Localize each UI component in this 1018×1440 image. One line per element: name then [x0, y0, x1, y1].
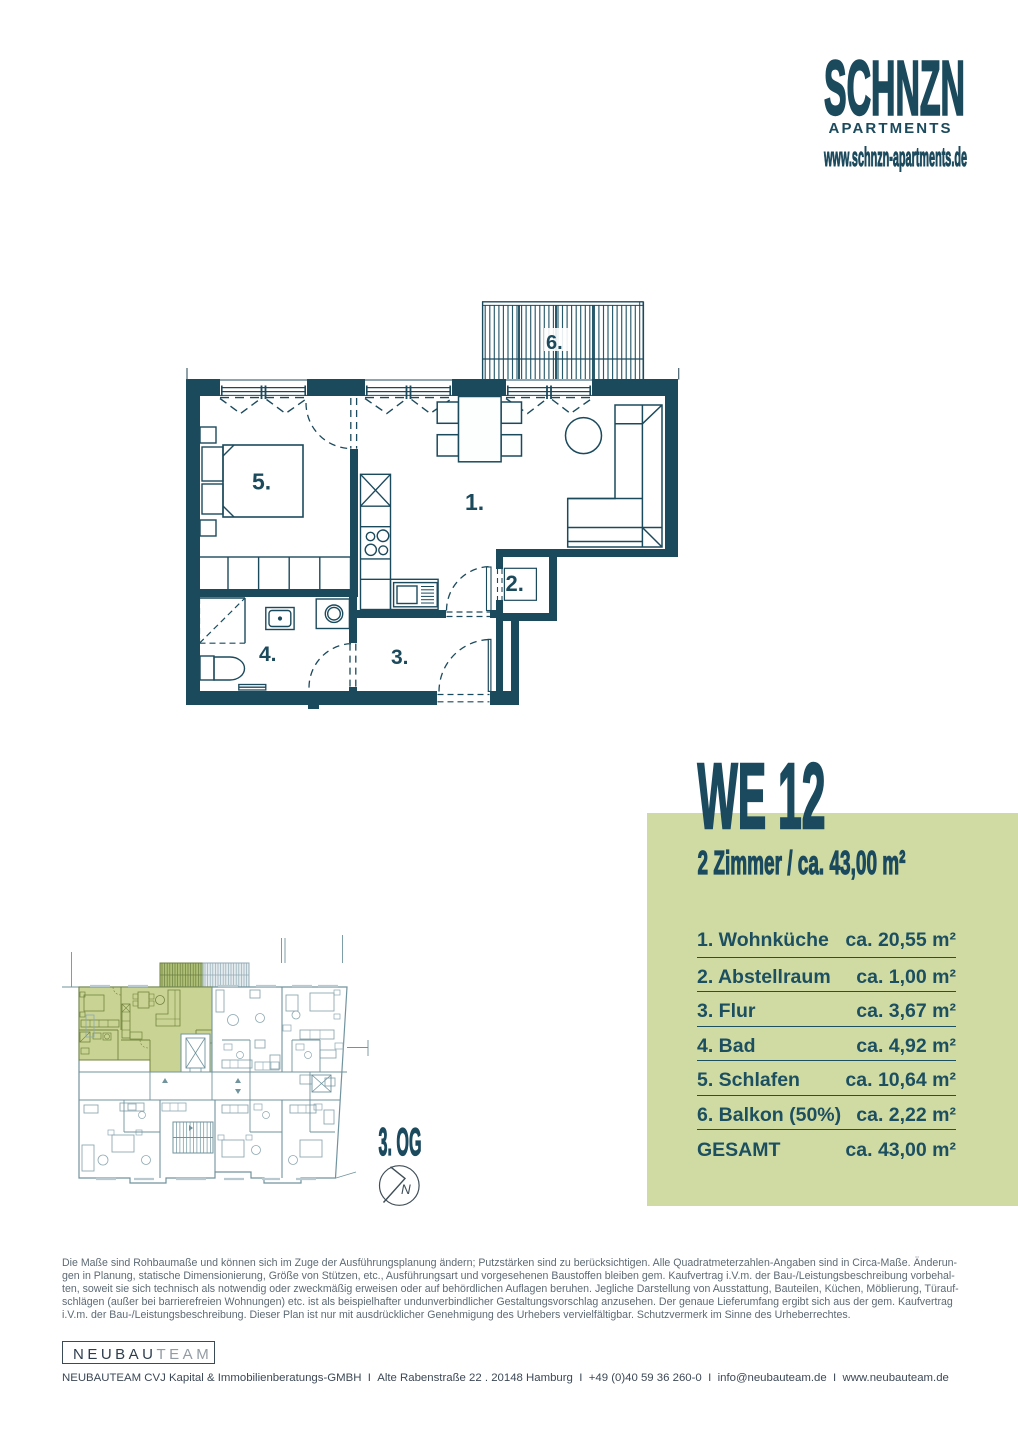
svg-text:5.: 5. — [252, 469, 271, 495]
svg-text:6.: 6. — [546, 332, 563, 354]
svg-text:3.: 3. — [391, 646, 409, 669]
svg-text:N: N — [401, 1182, 411, 1197]
svg-text:www.schnzn-apartments.de: www.schnzn-apartments.de — [824, 142, 967, 172]
svg-text:2 Zimmer / ca. 43,00 m²: 2 Zimmer / ca. 43,00 m² — [698, 845, 906, 882]
svg-text:APARTMENTS: APARTMENTS — [829, 120, 951, 137]
svg-text:WE 12: WE 12 — [698, 745, 826, 848]
svg-text:SCHNZN: SCHNZN — [824, 46, 965, 132]
svg-text:1.: 1. — [465, 489, 484, 515]
svg-text:4.: 4. — [259, 643, 277, 666]
svg-text:2.: 2. — [506, 571, 524, 596]
